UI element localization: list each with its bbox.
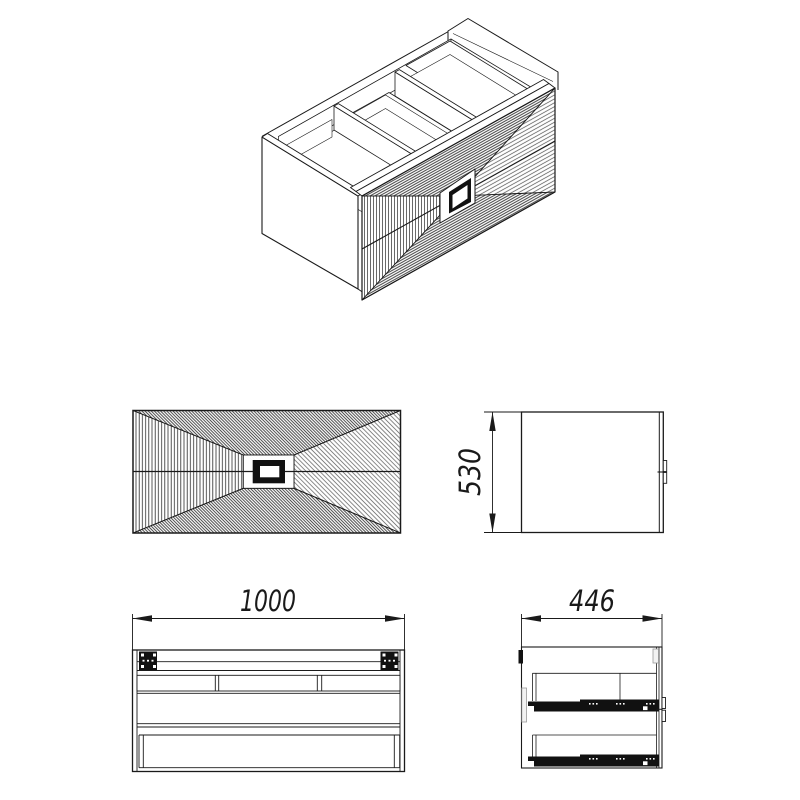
dimension-label-width: 1000 (240, 584, 296, 618)
handle-hole (260, 466, 279, 477)
technical-drawing-page: 530 (0, 0, 800, 800)
depth-dimension (522, 614, 663, 647)
height-dimension (484, 412, 523, 533)
technical-drawing-canvas: 530 (0, 0, 800, 800)
dimension-label-height: 530 (453, 448, 487, 496)
handle-profile-top (662, 698, 666, 709)
bracket-side-profile (519, 650, 524, 664)
handle-profile-top (663, 461, 666, 472)
hanging-bracket-left (139, 652, 157, 671)
width-dimension (133, 614, 405, 650)
front-stretcher-rail (137, 675, 400, 693)
carcass-front-view: 1000 (133, 584, 405, 772)
front-view (133, 411, 401, 534)
handle-profile-bottom (662, 710, 666, 721)
top-rail-section (653, 649, 659, 663)
hanging-bracket-right (381, 652, 399, 671)
dimension-label-depth: 446 (569, 584, 615, 618)
isometric-view (262, 19, 558, 301)
side-section-view: 446 (519, 584, 666, 768)
handle-profile-bottom (663, 473, 666, 484)
side-view: 530 (453, 412, 667, 533)
back-panel-tab (522, 688, 527, 722)
